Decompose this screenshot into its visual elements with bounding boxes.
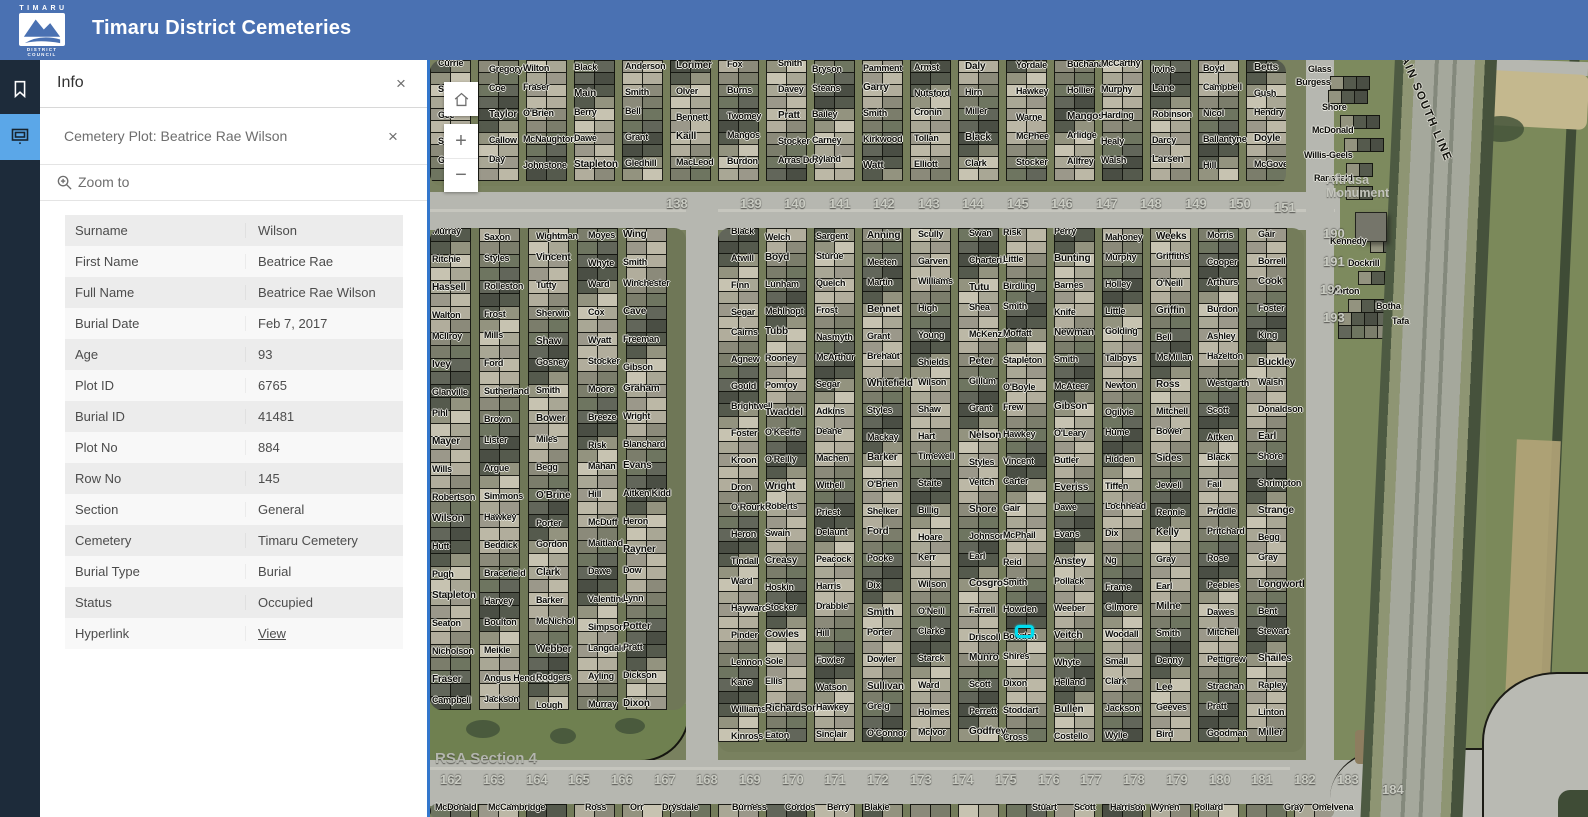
plot-cell — [834, 391, 855, 405]
plot-label: Burdon — [1207, 304, 1238, 314]
plot-label: Wright — [765, 481, 795, 492]
plot-cell — [1170, 541, 1191, 555]
plot-label: Morris — [1207, 230, 1233, 240]
plot-cell — [862, 591, 883, 605]
plot-label: Tiffen — [1105, 481, 1128, 491]
plot-label: Harris — [816, 581, 841, 591]
attribute-label: Cemetery — [65, 533, 245, 548]
plot-label: Wilson — [432, 513, 464, 524]
plot-cell — [1074, 168, 1095, 181]
plot-cell — [978, 591, 999, 605]
plot-cell — [499, 293, 520, 307]
plot-cell — [577, 397, 598, 411]
plot-label: Cordos — [785, 802, 815, 812]
plot-label: Peebles — [1207, 580, 1240, 590]
plot-cell — [1054, 466, 1075, 480]
plot-label: Maitland — [588, 538, 623, 548]
plot-label: O'Brien — [523, 108, 554, 118]
plot-label: Larsen — [1152, 154, 1184, 165]
row-number-right: 193 — [1323, 310, 1345, 325]
plot-cell — [1026, 403, 1047, 417]
plot-label: Timewell — [918, 451, 954, 461]
plot-cell — [1006, 441, 1027, 455]
plot-label: Kirkwood — [863, 134, 902, 144]
plot-cell — [978, 516, 999, 530]
plot-label: Wilton — [523, 63, 549, 73]
plot-cell — [910, 804, 931, 817]
plot-label: Rayner — [623, 544, 656, 555]
plot-label: Warne — [1016, 112, 1042, 122]
plot-cell — [626, 657, 647, 671]
plot-label: Cronin — [914, 107, 942, 117]
plot-label: Risk — [1003, 228, 1021, 237]
plot-cell — [1054, 616, 1075, 630]
plot-cell — [548, 631, 569, 645]
plot-cell — [738, 466, 759, 480]
plot-label: Pratt — [1207, 701, 1227, 711]
row-number-right: 190 — [1323, 226, 1345, 241]
plot-label: Callow — [489, 135, 517, 145]
plot-cell — [766, 266, 787, 280]
plot-cell — [834, 291, 855, 305]
plot-label: Bower — [1156, 426, 1183, 436]
plot-cell — [1074, 516, 1095, 530]
plot-cell — [834, 641, 855, 655]
plot-cell — [978, 391, 999, 405]
plot-label: Hoare — [918, 532, 943, 542]
plot-cell — [1198, 641, 1219, 655]
plot-label: Gillum — [969, 376, 996, 386]
plot-label: Arlidge — [1067, 130, 1097, 140]
row-number-bottom: 181 — [1251, 772, 1273, 787]
plot-label: Goodman — [1207, 728, 1248, 738]
plot-label: Bryson — [812, 64, 842, 74]
plot-cell — [528, 267, 549, 281]
attribute-row: SurnameWilson — [65, 215, 403, 246]
plot-cell — [1266, 641, 1287, 655]
plot-label: Brown — [484, 414, 511, 424]
plot-cell — [814, 641, 835, 655]
plot-label: Helland — [1054, 677, 1085, 687]
plot-label: Hill — [588, 489, 601, 499]
attribute-value: Timaru Cemetery — [245, 533, 403, 548]
plot-cell — [1246, 241, 1267, 255]
plot-cell — [882, 168, 903, 181]
plot-cell — [479, 371, 500, 385]
row-number-bottom: 183 — [1337, 772, 1359, 787]
row-number-bottom: 169 — [739, 772, 761, 787]
plot-cell — [1170, 466, 1191, 480]
plot-label: Little — [1003, 254, 1023, 264]
plot-cell — [738, 691, 759, 705]
plot-cell — [1026, 516, 1047, 530]
plot-label: Tutu — [969, 282, 989, 293]
plot-cell — [499, 579, 520, 593]
plot-cell — [1122, 391, 1143, 405]
plot-label: O'Brien — [867, 479, 898, 489]
plot-cell — [1074, 541, 1095, 555]
map[interactable]: MAIN SOUTH LINE AltrusaMonument CurrieSi… — [430, 60, 1588, 817]
plot-label: Argue — [484, 463, 509, 473]
plot-cell — [577, 371, 598, 385]
plot-label: Ogilvie — [1105, 407, 1134, 417]
plot-label: Deane — [816, 426, 842, 436]
sidebar-item-info[interactable] — [0, 114, 40, 160]
plot-label: Perrett — [969, 706, 997, 716]
plot-cell — [479, 657, 500, 671]
plot-cell — [1102, 366, 1123, 380]
plot-label: O'Neill — [918, 606, 945, 616]
plot-cell — [646, 501, 667, 515]
plot-cell — [1356, 76, 1370, 90]
plot-cell — [738, 416, 759, 430]
plot-cell — [597, 501, 618, 515]
plot-label: Burgess — [1296, 77, 1331, 87]
feature-header: Cemetery Plot: Beatrice Rae Wilson × — [40, 108, 427, 165]
plot-label: Dawe — [1054, 502, 1077, 512]
plot-cell — [834, 616, 855, 630]
plot-label: Harvey — [484, 596, 513, 606]
plot-label: Foster — [731, 428, 757, 438]
plot-label: Pratt — [623, 642, 643, 652]
plot-label: Grant — [867, 331, 890, 341]
plot-cell — [882, 466, 903, 480]
plot-cell — [978, 616, 999, 630]
plot-cell — [1122, 691, 1143, 705]
plot-label: Harding — [1101, 110, 1134, 120]
plot-label: Campbell — [432, 695, 471, 705]
plot-cell — [1006, 341, 1027, 355]
row-number-top: 140 — [784, 196, 806, 211]
plot-label: Heron — [623, 516, 648, 526]
plot-cell — [1122, 466, 1143, 480]
plot-label: Tollan — [914, 133, 939, 143]
plot-label: Aitken Kidd — [623, 488, 671, 498]
attribute-row: StatusOccupied — [65, 587, 403, 618]
plot-label: Hassell — [432, 282, 466, 293]
plot-cell — [958, 266, 979, 280]
plot-label: Darcy — [1152, 135, 1176, 145]
plot-label: Drysdale — [662, 802, 698, 812]
row-number-bottom: 164 — [526, 772, 548, 787]
plot-cell — [1006, 416, 1027, 430]
plot-cell — [958, 804, 979, 817]
info-panel-title: Info — [57, 74, 84, 92]
plot-label: Dixon — [1003, 678, 1027, 688]
plot-label: Newton — [1105, 380, 1136, 390]
plot-label: O'Leary — [1054, 428, 1086, 438]
plot-label: Berry — [574, 107, 597, 117]
plot-cell — [910, 391, 931, 405]
plot-cell — [577, 241, 598, 255]
plot-cell — [1198, 666, 1219, 680]
plot-label: McCambridge — [488, 802, 545, 812]
plot-label: Segar — [816, 379, 840, 389]
plot-cell — [597, 423, 618, 437]
zoom-in-button[interactable]: + — [444, 124, 478, 158]
plot-cell — [766, 441, 787, 455]
plot-cell — [1006, 491, 1027, 505]
plot-cell — [1343, 76, 1357, 90]
plot-cell — [1074, 416, 1095, 430]
plot-cell — [626, 397, 647, 411]
plot-label: Carney — [812, 135, 841, 145]
plot-label: Arthurs — [1207, 277, 1238, 287]
plot-cell — [882, 416, 903, 430]
home-button[interactable] — [444, 82, 478, 116]
plot-label: Barker — [536, 595, 563, 605]
plot-label: Miles — [536, 434, 558, 444]
plot-cell — [430, 605, 451, 619]
plot-label: Starck — [918, 653, 944, 663]
info-panel: Info × Cemetery Plot: Beatrice Rae Wilso… — [40, 60, 430, 817]
attribute-value: 6765 — [245, 378, 403, 393]
plot-label: Sole — [765, 656, 783, 666]
plot-label: Ward — [918, 680, 939, 690]
sidebar-item-bookmarks[interactable] — [0, 68, 40, 114]
plot-block-main-block: BlackAtwillFinnSegarCairnsAgnewGouldBrig… — [718, 228, 1304, 752]
plot-cell — [430, 657, 451, 671]
plot-label: Garry — [863, 82, 889, 93]
plot-cell — [1338, 325, 1352, 339]
plot-cell — [499, 449, 520, 463]
plot-cell — [766, 291, 787, 305]
zoom-controls: + − — [444, 124, 478, 192]
plot-cell — [738, 716, 759, 730]
plot-cell — [1074, 228, 1095, 242]
plot-label: Kerr — [918, 552, 936, 562]
selected-plot-highlight[interactable] — [1015, 625, 1034, 638]
plot-label: Ford — [484, 358, 503, 368]
plot-cell — [834, 168, 855, 181]
plot-cell — [528, 683, 549, 697]
plot-label: Griffiths — [1156, 251, 1189, 261]
attribute-value: View — [245, 626, 403, 641]
plot-cell — [786, 316, 807, 330]
plot-cell — [1198, 416, 1219, 430]
plot-label: Shore — [969, 504, 996, 515]
plot-cell — [499, 345, 520, 359]
attribute-row: Row No145 — [65, 463, 403, 494]
hyperlink-view-link[interactable]: View — [258, 626, 286, 641]
plot-cell — [1054, 341, 1075, 355]
plot-block-top-strip: CurrieSimpsonGeeShawGibsonGregoryCoeTayl… — [430, 60, 1286, 186]
plot-cell — [910, 168, 931, 181]
plot-label: Wright — [623, 411, 650, 421]
plot-label: Perry — [1054, 228, 1076, 236]
plot-cell — [548, 657, 569, 671]
plot-label: Jackson — [1105, 703, 1140, 713]
plot-cell — [1218, 541, 1239, 555]
plot-cell — [1218, 666, 1239, 680]
plot-cell — [499, 553, 520, 567]
row-number-top: 146 — [1051, 196, 1073, 211]
attribute-label: Surname — [65, 223, 245, 238]
plot-label: Wilson — [918, 377, 946, 387]
plot-cell — [646, 306, 667, 320]
plot-label: Black — [574, 62, 597, 72]
plot-cell — [1026, 391, 1047, 405]
plot-label: Priddle — [1207, 506, 1236, 516]
row-number-top: 145 — [1007, 196, 1029, 211]
plot-cell — [1198, 316, 1219, 330]
plot-cell — [978, 491, 999, 505]
plot-label: Murray — [588, 699, 617, 709]
plot-label: Cook — [1258, 276, 1282, 287]
plot-cell — [430, 553, 451, 567]
feature-close-button[interactable]: × — [381, 125, 405, 149]
plot-label: Charteris — [969, 255, 1007, 265]
plot-cell — [499, 631, 520, 645]
plot-cell — [1170, 441, 1191, 455]
plot-cell — [978, 341, 999, 355]
plot-cell — [766, 716, 787, 730]
plot-label: Pihl — [432, 408, 448, 418]
plot-label: Porter — [867, 627, 892, 637]
plot-label: Hazelton — [1207, 351, 1243, 361]
plot-cell — [1266, 666, 1287, 680]
plot-cell — [450, 540, 471, 554]
plot-cell — [548, 397, 569, 411]
plot-label: Styles — [969, 457, 994, 467]
plot-cell — [1006, 516, 1027, 530]
plot-cell — [1170, 391, 1191, 405]
plot-cell — [814, 616, 835, 630]
plot-cell — [1246, 491, 1267, 505]
plot-cell — [646, 683, 667, 697]
plot-label: Griffin — [1156, 305, 1185, 316]
plot-label: McPhail — [1003, 530, 1036, 540]
plot-cell — [1351, 312, 1365, 326]
plot-label: Gray — [1156, 554, 1176, 564]
plot-label: Sherwin — [536, 308, 570, 318]
plot-cell — [646, 254, 667, 268]
plot-cell — [1266, 466, 1287, 480]
plot-label: Wynen — [1151, 802, 1179, 812]
plot-cell — [450, 371, 471, 385]
plot-cell — [499, 475, 520, 489]
plot-label: Veitch — [1054, 630, 1082, 641]
plot-label: Gordon — [536, 539, 567, 549]
plot-cell — [1054, 441, 1075, 455]
plot-cell — [958, 666, 979, 680]
plot-label: Buckley — [1258, 357, 1295, 368]
plot-cell — [882, 541, 903, 555]
attribute-label: Section — [65, 502, 245, 517]
plot-label: Quelch — [816, 278, 845, 288]
plot-label: Hirn — [965, 87, 982, 97]
plot-label: Lee — [1156, 682, 1173, 693]
plot-label: Munro — [969, 652, 999, 663]
plot-cell — [814, 441, 835, 455]
plot-cell — [1218, 716, 1239, 730]
plot-cell — [1170, 716, 1191, 730]
plot-label: Mangos — [727, 130, 760, 140]
plot-label: Shore — [1258, 451, 1283, 461]
plot-cell — [430, 371, 451, 385]
plot-label: Dow — [623, 565, 641, 575]
plot-label: Rapley — [1258, 680, 1286, 690]
zoom-to-button[interactable]: Zoom to — [40, 165, 427, 201]
plot-label: Doyle — [1254, 133, 1280, 144]
zoom-out-button[interactable]: − — [444, 158, 478, 192]
plot-label: McNaughton — [523, 134, 576, 144]
plot-cell — [718, 291, 739, 305]
plot-label: Dawe — [588, 566, 611, 576]
plot-cell — [1170, 566, 1191, 580]
plot-label: Pamment — [863, 63, 902, 73]
plot-label: Wylie — [1105, 730, 1127, 740]
plot-cell — [597, 657, 618, 671]
plot-label: Whitefield — [867, 378, 913, 389]
plot-label: Tubb — [765, 326, 788, 337]
plot-cell — [499, 527, 520, 541]
plot-label: McGovern — [1254, 159, 1286, 169]
info-close-button[interactable]: × — [389, 72, 413, 96]
plot-cell — [499, 397, 520, 411]
plot-cell — [548, 553, 569, 567]
plot-cell — [670, 168, 691, 181]
plot-cell — [814, 291, 835, 305]
plot-label: Holmes — [918, 707, 949, 717]
plot-cell — [1054, 241, 1075, 255]
plot-label: Sides — [1156, 453, 1182, 464]
plot-label: Bell — [625, 106, 641, 116]
plot-cell — [1026, 503, 1047, 517]
plot-cell — [738, 641, 759, 655]
plot-cell — [646, 644, 667, 658]
plot-cell — [930, 241, 951, 255]
plot-label: Cox — [588, 307, 604, 317]
plot-label: Costello — [1054, 731, 1088, 741]
plot-cell — [766, 691, 787, 705]
plot-cell — [958, 691, 979, 705]
plot-label: Wightman — [536, 231, 578, 241]
plot-label: Scott — [969, 679, 991, 689]
plot-label: Frame — [1105, 582, 1131, 592]
plot-cell — [478, 168, 499, 181]
plot-label: Dowler — [867, 654, 896, 664]
plot-label: Mackay — [867, 432, 898, 442]
plot-cell — [1150, 566, 1171, 580]
plot-cell — [958, 391, 979, 405]
plot-cell — [1198, 391, 1219, 405]
plot-cell — [862, 466, 883, 480]
plot-cell — [1006, 591, 1027, 605]
plot-label: Swan — [969, 228, 992, 238]
magnifier-plus-icon — [56, 174, 73, 191]
plot-cell — [882, 391, 903, 405]
plot-label: Finn — [731, 280, 749, 290]
plot-cell — [766, 566, 787, 580]
plot-label: Mayer — [432, 436, 460, 447]
plot-label: Priest — [816, 507, 840, 517]
plot-cell — [450, 358, 471, 372]
plot-label: Clarke — [918, 626, 944, 636]
plot-cell — [1266, 691, 1287, 705]
plot-label: Taylor — [489, 109, 517, 120]
plot-cell — [1170, 291, 1191, 305]
plot-cell — [862, 391, 883, 405]
attribute-value: 93 — [245, 347, 403, 362]
plot-cell — [862, 666, 883, 680]
plot-label: Drabble — [816, 601, 848, 611]
plot-label: Boyd — [1203, 63, 1225, 73]
plot-cell — [1170, 491, 1191, 505]
plot-label: Gilmore — [1105, 602, 1138, 612]
plot-label: Boyd — [765, 252, 789, 263]
plot-label: Gibson — [1054, 401, 1087, 412]
